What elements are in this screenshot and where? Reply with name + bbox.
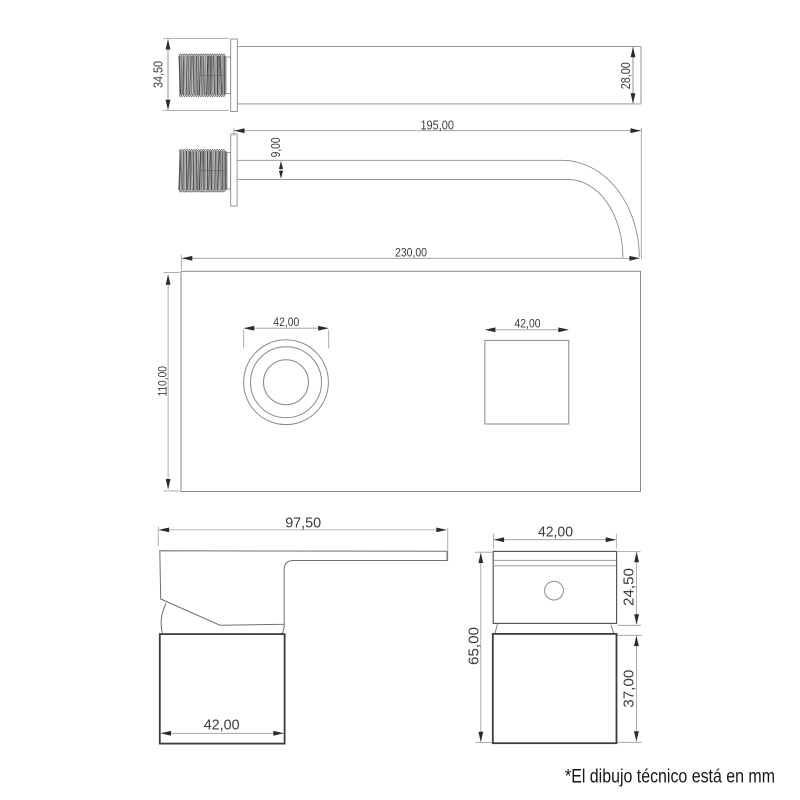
svg-text:230,00: 230,00 [395,246,427,260]
svg-text:65,00: 65,00 [466,627,482,665]
svg-text:42,00: 42,00 [204,717,240,733]
svg-text:28,00: 28,00 [618,62,633,89]
svg-text:34,50: 34,50 [151,61,166,88]
svg-text:110,00: 110,00 [156,366,170,397]
svg-text:97,50: 97,50 [285,516,321,532]
svg-text:*El dibujo técnico está en mm: *El dibujo técnico está en mm [565,766,775,788]
svg-text:24,50: 24,50 [622,568,638,606]
svg-text:42,00: 42,00 [538,524,573,540]
svg-text:195,00: 195,00 [420,118,454,133]
svg-text:9,00: 9,00 [268,137,283,157]
svg-text:37,00: 37,00 [621,670,637,708]
svg-text:42,00: 42,00 [273,315,299,329]
svg-text:42,00: 42,00 [515,317,541,331]
